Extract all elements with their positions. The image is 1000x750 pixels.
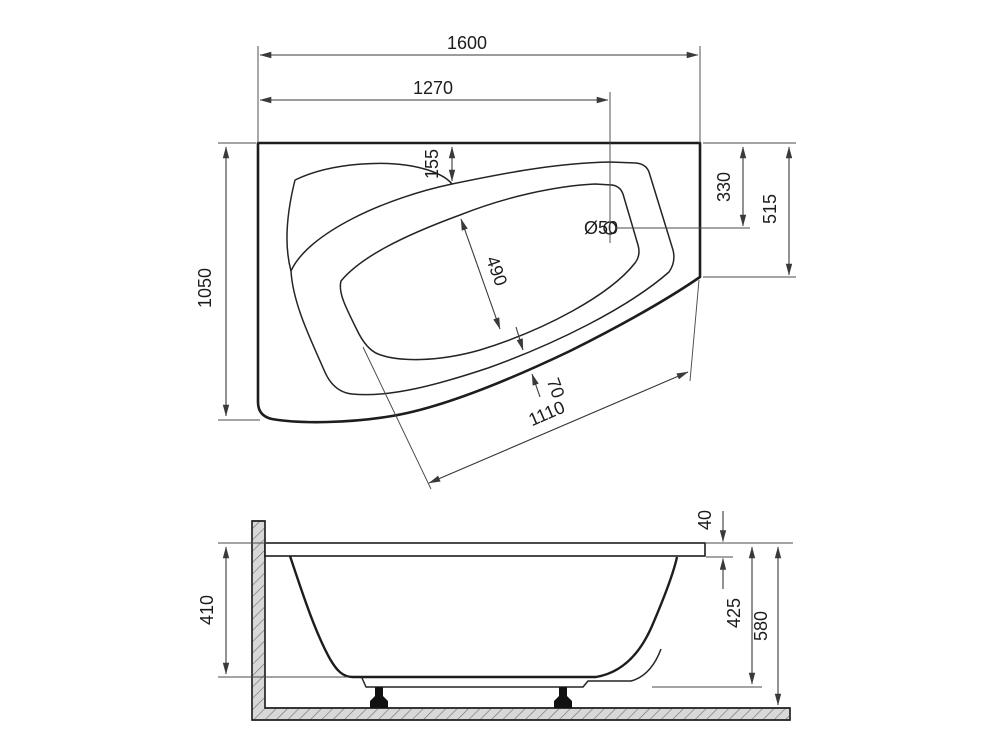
dim-value: 1270: [413, 78, 453, 98]
dim-value: 1050: [195, 268, 215, 308]
tub-foot-left: [370, 687, 388, 708]
dim-drain-offset-x: 1270: [260, 78, 608, 100]
tub-foot-right: [554, 687, 572, 708]
bathtub-technical-drawing: Ø50 1600 1270 1050 155: [0, 0, 1000, 750]
dim-right-side-depth: 515: [760, 147, 789, 275]
dim-value: 410: [197, 595, 217, 625]
dim-line: [532, 374, 540, 397]
dim-total-height: 580: [751, 547, 778, 705]
dim-value: 70: [543, 375, 569, 401]
dim-value: 330: [714, 172, 734, 202]
dim-value: 1600: [447, 33, 487, 53]
drain-diameter-label: Ø50: [584, 218, 618, 238]
drawing-page: Ø50 1600 1270 1050 155: [0, 0, 1000, 750]
top-view: Ø50 1600 1270 1050 155: [195, 33, 796, 489]
side-view: 410 40 425 580: [197, 510, 793, 720]
dim-value: 40: [695, 510, 715, 530]
dim-value: 515: [760, 194, 780, 224]
dim-total-width: 1600: [260, 33, 698, 55]
dim-drain-offset-y: 330: [714, 147, 743, 226]
tub-outline-top: [258, 143, 700, 422]
dim-value: 425: [724, 598, 744, 628]
dim-total-depth: 1050: [195, 147, 226, 416]
tub-interior-profile: [290, 556, 677, 677]
dim-shell-height: 425: [724, 547, 752, 684]
dim-value: 155: [422, 149, 442, 179]
ext-line: [690, 280, 699, 381]
dim-value: 580: [751, 611, 771, 641]
dim-value: 1110: [526, 397, 568, 430]
tub-rim-section: [265, 543, 705, 556]
dim-inner-depth: 410: [197, 547, 226, 674]
tub-support-frame: [362, 649, 661, 687]
